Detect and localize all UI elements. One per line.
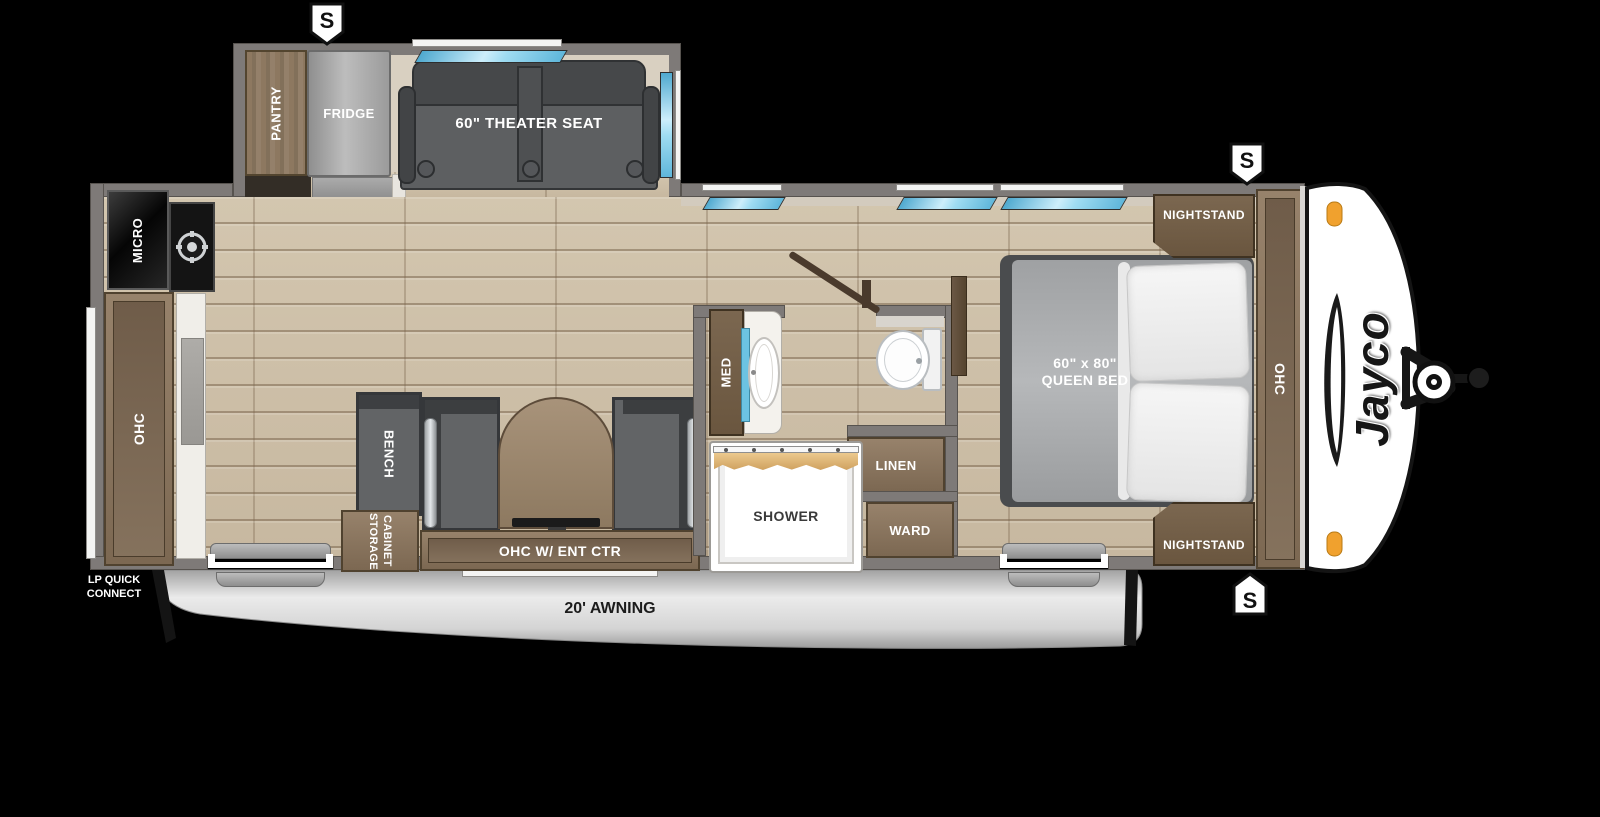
entry-door-frame-tab xyxy=(1101,554,1108,568)
entry-step-lower xyxy=(216,572,325,587)
faucet-icon xyxy=(751,370,756,375)
pantry-label: PANTRY xyxy=(269,86,284,140)
window-strip xyxy=(1000,184,1124,191)
clearance-light-icon xyxy=(1327,532,1342,556)
bedroom-ohc-label: OHC xyxy=(1272,363,1288,395)
dinette-grab-post-left xyxy=(424,418,437,528)
dinette-seat-right-headrest xyxy=(623,400,695,414)
entry-door-frame-tab xyxy=(326,554,333,568)
theater-seat: 60" THEATER SEAT xyxy=(400,60,658,190)
lp-quick-connect-line2: CONNECT xyxy=(87,588,141,600)
lp-quick-connect-callout: LP QUICK CONNECT xyxy=(78,573,150,601)
cooktop xyxy=(169,202,215,292)
kitchen-counter-inset xyxy=(181,338,204,445)
ward-cabinet: WARD xyxy=(866,502,954,558)
speaker-badge: S xyxy=(1230,572,1270,618)
fridge-label: FRIDGE xyxy=(323,106,375,121)
entry-step xyxy=(1002,543,1106,559)
nightstand-top-label: NIGHTSTAND xyxy=(1163,208,1245,222)
cupholder-icon xyxy=(626,160,644,178)
linen-top-wall xyxy=(847,425,958,437)
jayco-logo: Jayco xyxy=(1341,269,1403,489)
cupholder-icon xyxy=(417,160,435,178)
entry-step xyxy=(210,543,331,559)
awning-right-tip xyxy=(1124,570,1138,646)
bed-size-label: 60" x 80" xyxy=(1053,355,1117,371)
awning-label: 20' AWNING xyxy=(564,600,655,617)
window-strip xyxy=(702,184,782,191)
window xyxy=(896,197,998,210)
kitchen-ohc: OHC xyxy=(104,292,174,566)
floorplan-canvas: 20' AWNING PANTRY FRIDGE 60" THEATER SEA… xyxy=(0,0,1600,817)
theater-seat-armrest-right xyxy=(642,86,660,184)
storage-cabinet: STORAGE CABINET xyxy=(341,510,419,572)
entry-door-frame-tab xyxy=(208,554,215,568)
fridge: FRIDGE xyxy=(307,50,391,177)
nightstand-bottom-label: NIGHTSTAND xyxy=(1163,538,1245,552)
curtain-hook-icon xyxy=(724,448,728,452)
bed-label: 60" x 80" QUEEN BED xyxy=(1018,355,1152,389)
curtain-hook-icon xyxy=(752,448,756,452)
curtain-hook-icon xyxy=(808,448,812,452)
bath-left-wall xyxy=(693,305,706,556)
ward-top-wall xyxy=(847,491,958,502)
lp-quick-connect-line1: LP QUICK xyxy=(88,574,140,586)
dinette-table xyxy=(498,397,614,529)
curtain-hook-icon xyxy=(836,448,840,452)
pantry-cabinet: PANTRY xyxy=(245,50,307,176)
med-cabinet: MED xyxy=(709,309,744,436)
storage-cabinet-label-2: CABINET xyxy=(381,515,393,567)
speaker-badge: S xyxy=(307,0,347,46)
window-strip xyxy=(896,184,994,191)
speaker-badge: S xyxy=(1227,140,1267,186)
microwave: MICRO xyxy=(107,190,169,290)
shower-label: SHOWER xyxy=(709,508,863,524)
entry-door-frame-tab xyxy=(1000,554,1007,568)
burner-icon xyxy=(175,230,209,264)
entry-step-lower xyxy=(1008,572,1100,587)
speaker-label: S xyxy=(307,8,347,34)
speaker-label: S xyxy=(1230,588,1270,614)
slide-right-window-strip xyxy=(675,70,681,180)
microwave-label: MICRO xyxy=(131,217,146,262)
theater-seat-armrest-left xyxy=(398,86,416,184)
window xyxy=(702,197,786,210)
linen-label: LINEN xyxy=(876,458,917,473)
entry-door-frame xyxy=(208,562,333,568)
speaker-label: S xyxy=(1227,148,1267,174)
hitch xyxy=(1398,335,1518,425)
clearance-light-icon xyxy=(1327,202,1342,226)
dinette-seat-right xyxy=(612,397,698,531)
coupler-ball-icon xyxy=(1468,367,1490,389)
ent-center-label: OHC W/ ENT CTR xyxy=(499,543,621,559)
bottom-window-strip xyxy=(462,570,658,577)
theater-seat-label: 60" THEATER SEAT xyxy=(400,115,658,132)
tv xyxy=(512,518,600,527)
left-wall-window xyxy=(86,307,96,559)
cupholder-icon xyxy=(522,160,540,178)
storage-cabinet-label-1: STORAGE xyxy=(367,513,379,570)
slide-top-window xyxy=(414,50,568,63)
toilet-mat xyxy=(876,316,944,327)
bedroom-wing-wall xyxy=(951,276,967,376)
bed-name-label: QUEEN BED xyxy=(1042,372,1129,388)
pillow xyxy=(1126,382,1250,504)
bench-backrest xyxy=(359,395,419,409)
med-cabinet-label: MED xyxy=(719,357,734,387)
ent-center-cabinet: OHC W/ ENT CTR xyxy=(420,530,700,571)
jayco-logo-text: Jayco xyxy=(1345,311,1399,446)
dinette-seat-left-headrest xyxy=(425,400,497,414)
window xyxy=(1000,197,1128,210)
bath-door-stub xyxy=(862,280,871,308)
bench-seat: BENCH xyxy=(356,392,422,516)
toilet-flush-icon xyxy=(916,358,922,364)
nightstand-top: NIGHTSTAND xyxy=(1153,194,1255,258)
ward-label: WARD xyxy=(889,523,930,538)
entry-door-frame xyxy=(1000,562,1108,568)
nightstand-bottom: NIGHTSTAND xyxy=(1153,502,1255,566)
kitchen-ohc-label: OHC xyxy=(131,413,147,445)
bench-label: BENCH xyxy=(382,430,397,478)
slide-top-window-strip xyxy=(412,39,562,47)
slide-right-window xyxy=(660,72,673,178)
curtain-hook-icon xyxy=(780,448,784,452)
